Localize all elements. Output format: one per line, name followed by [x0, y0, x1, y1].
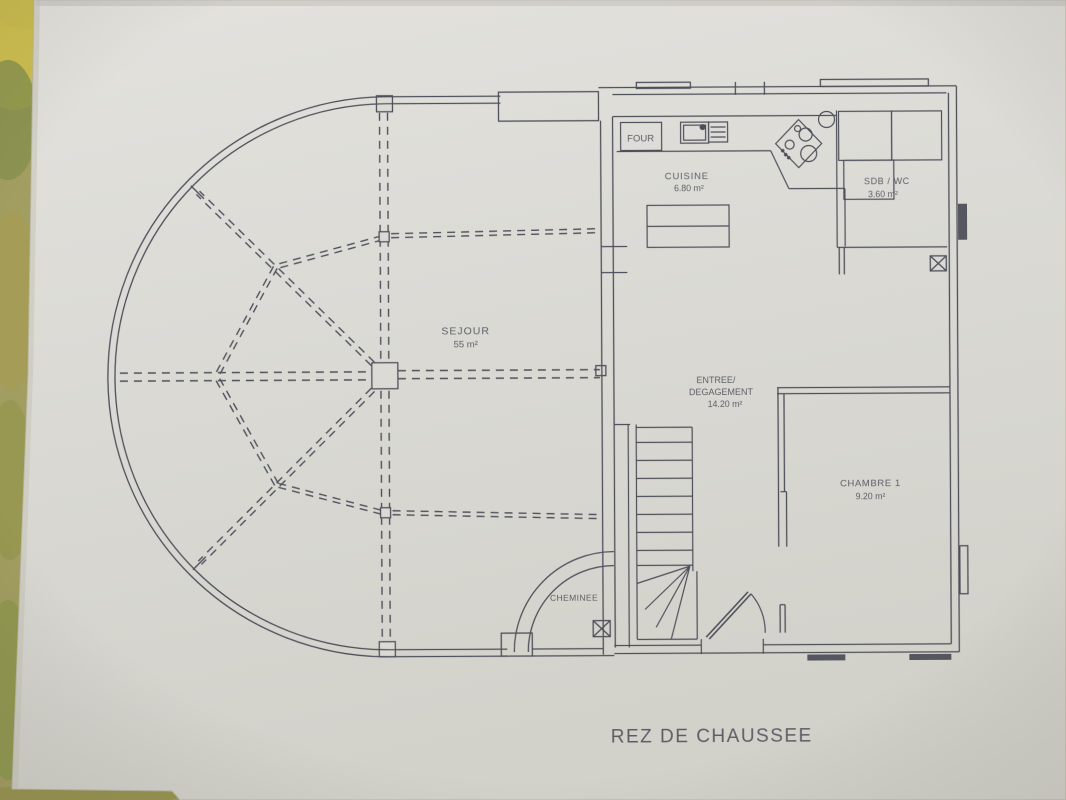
photo-vignette [0, 0, 1066, 800]
floorplan-photo: SEJOUR 55 m² CUISINE 6.80 m² SDB / WC 3.… [0, 0, 1066, 800]
floorplan-drawing: SEJOUR 55 m² CUISINE 6.80 m² SDB / WC 3.… [0, 0, 1066, 800]
